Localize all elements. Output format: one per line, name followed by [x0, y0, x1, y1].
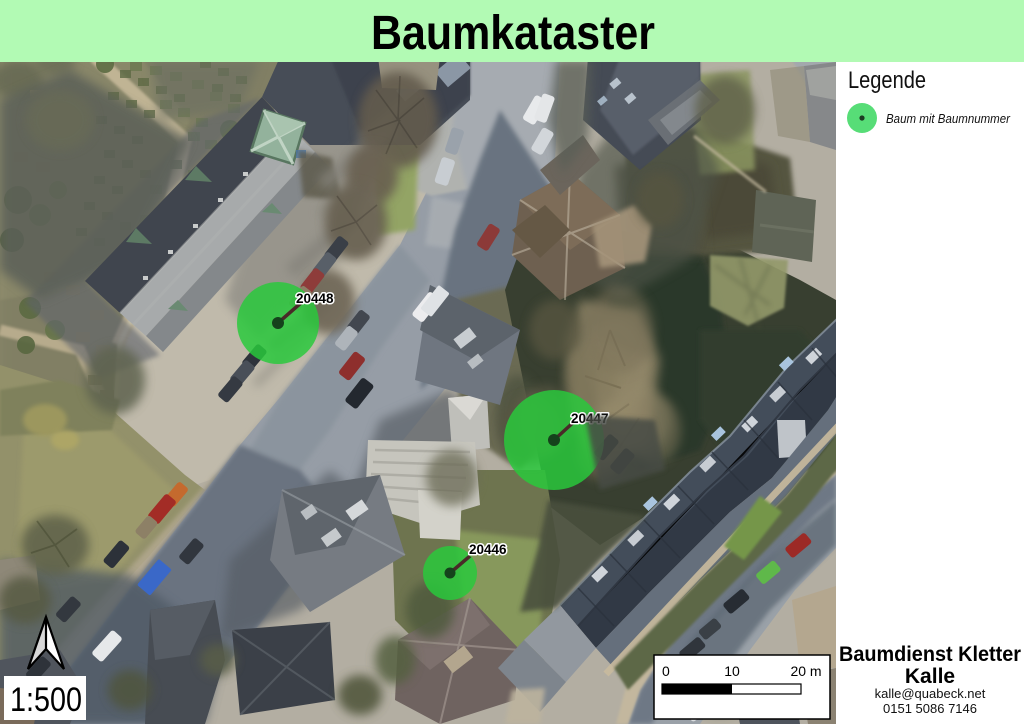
svg-text:20446: 20446	[469, 542, 507, 557]
svg-text:0151 5086 7146: 0151 5086 7146	[883, 701, 977, 716]
svg-text:0: 0	[662, 663, 670, 679]
svg-text:1:500: 1:500	[10, 681, 82, 719]
svg-text:Kalle: Kalle	[905, 665, 955, 688]
svg-text:Baumkataster: Baumkataster	[371, 7, 655, 60]
svg-text:Baumdienst Kletter: Baumdienst Kletter	[839, 643, 1021, 666]
svg-text:20448: 20448	[296, 291, 334, 306]
svg-text:Baum mit Baumnummer: Baum mit Baumnummer	[886, 112, 1011, 126]
svg-text:Legende: Legende	[848, 67, 926, 94]
svg-text:20 m: 20 m	[790, 663, 821, 679]
svg-text:kalle@quabeck.net: kalle@quabeck.net	[875, 686, 986, 701]
svg-text:10: 10	[724, 663, 740, 679]
